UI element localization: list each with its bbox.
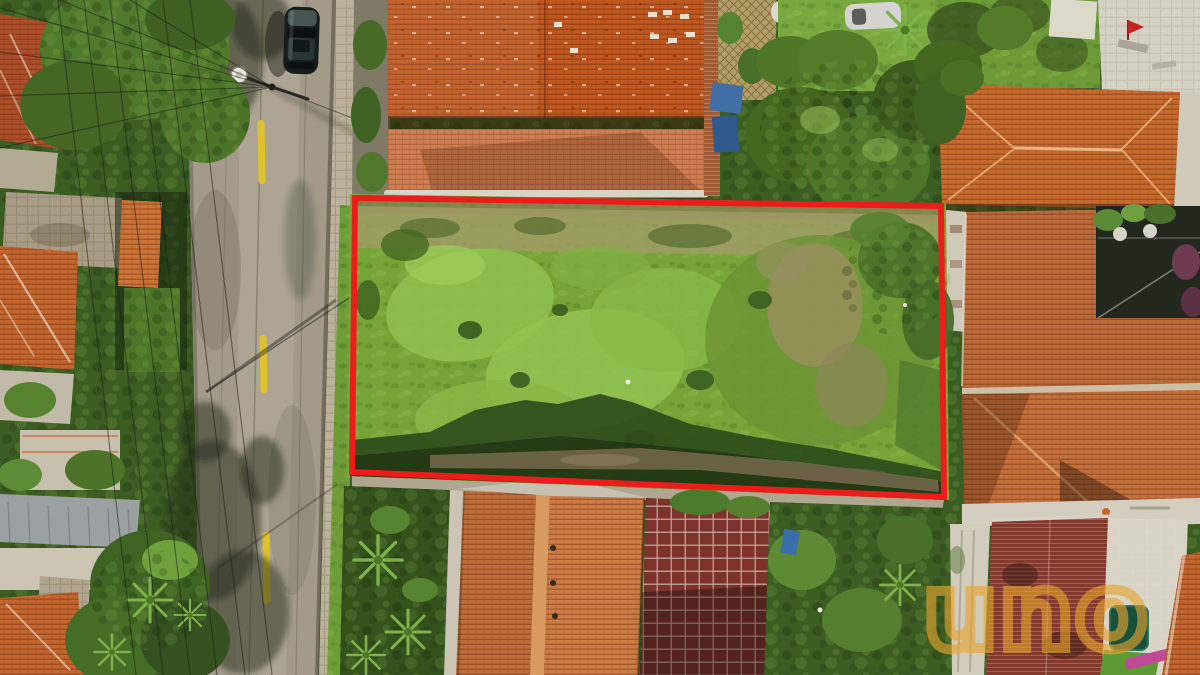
watermark-text: uno	[923, 551, 1149, 673]
vacant-lot	[347, 194, 954, 500]
blue-tarp	[709, 82, 743, 114]
watermark-logo: uno	[923, 551, 1149, 673]
parked-car	[283, 6, 320, 74]
bottom-houses	[340, 476, 948, 675]
top-building	[351, 0, 957, 215]
aerial-photo: uno	[0, 0, 1200, 675]
scene: uno	[0, 0, 1200, 675]
